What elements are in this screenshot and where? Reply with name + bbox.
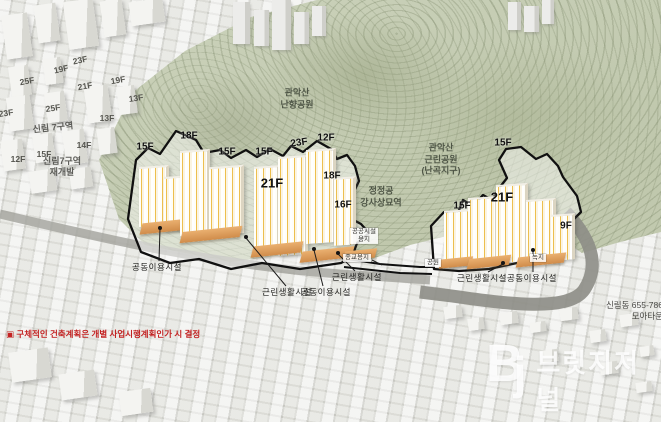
facility-label: 근린생활시설 [457,272,507,284]
floor-label: 18F [180,131,197,142]
floor-label: 9F [560,221,572,232]
site-use-tag: 공원 [425,259,441,267]
highrise-silhouette [524,6,539,32]
floor-label: 18F [323,171,340,182]
facility-label: 공동이용시설 [132,261,182,273]
district-label: 신림7구역 재개발 [43,156,81,179]
building-block [467,317,485,331]
bg-floor-label: 14F [77,140,92,150]
highrise-silhouette [542,0,554,24]
building-block [118,388,153,416]
apartment-tower [306,148,336,244]
facility-label: 공동이용시설 [507,272,557,284]
building-block [8,347,52,382]
highrise-silhouette [233,2,250,44]
site-use-tag: 종교용지 [343,254,371,262]
bg-floor-label: 13F [128,92,144,104]
park-label: 관악산 근린공원 (난곡지구) [421,142,460,177]
floor-label: 12F [317,133,334,144]
park-label: 관악산 난향공원 [280,87,313,110]
bridge-journal-watermark: B j 브릿지저널 BRIDGE JOURNAL [486,341,661,422]
logo-name-korean: 브릿지저널 [536,343,661,417]
building-block [128,0,165,26]
floor-label: 15F [255,147,272,158]
building-block [499,311,518,325]
site-address-line2: 모아타운 [606,311,661,322]
highrise-silhouette [294,12,309,44]
floor-label: 15F [494,138,511,149]
building-block [559,307,578,321]
logo-monogram-j: j [514,353,527,394]
heritage-label: 정정공 강사상묘역 [360,185,401,208]
site-use-tag: 공공시설 용지 [350,228,378,244]
bg-floor-label: 23F [0,107,14,119]
logo-text: 브릿지저널 BRIDGE JOURNAL [536,343,661,422]
highrise-silhouette [508,2,521,30]
site-address-line1: 신림동 655-786 [606,300,661,311]
facility-label: 공동이용시설 [301,286,351,298]
site-use-tag: 녹지 [530,254,546,262]
floor-label: 15F [453,201,470,212]
floor-label: 15F [136,142,153,153]
bg-floor-label: 13F [100,113,115,123]
highrise-silhouette [272,0,291,50]
building-block [58,370,97,401]
facility-label: 근린생활시설 [332,271,382,283]
highrise-silhouette [312,6,326,36]
site-address: 신림동 655-786 모아타운 [606,300,661,321]
floor-label: 21F [261,176,283,191]
building-block [63,0,99,50]
floor-label: 21F [491,190,513,205]
apartment-tower [468,196,498,264]
floor-label: 16F [334,200,351,211]
apartment-tower [180,149,210,236]
highrise-silhouette [254,10,269,46]
floor-label: 15F [218,147,235,158]
bg-floor-label: 12F [11,154,26,164]
apartment-tower [209,165,244,235]
disclaimer-note: ▣ 구체적인 건축계획은 개별 사업시행계획인가 시 결정 [6,328,200,340]
building-block [96,127,117,155]
site-plan-rendering: 15F 18F 15F 15F 23F 12F 21F 18F 16F 15F … [0,0,661,422]
bg-floor-label: 25F [45,102,61,114]
building-block [100,0,127,37]
building-block [443,305,462,319]
